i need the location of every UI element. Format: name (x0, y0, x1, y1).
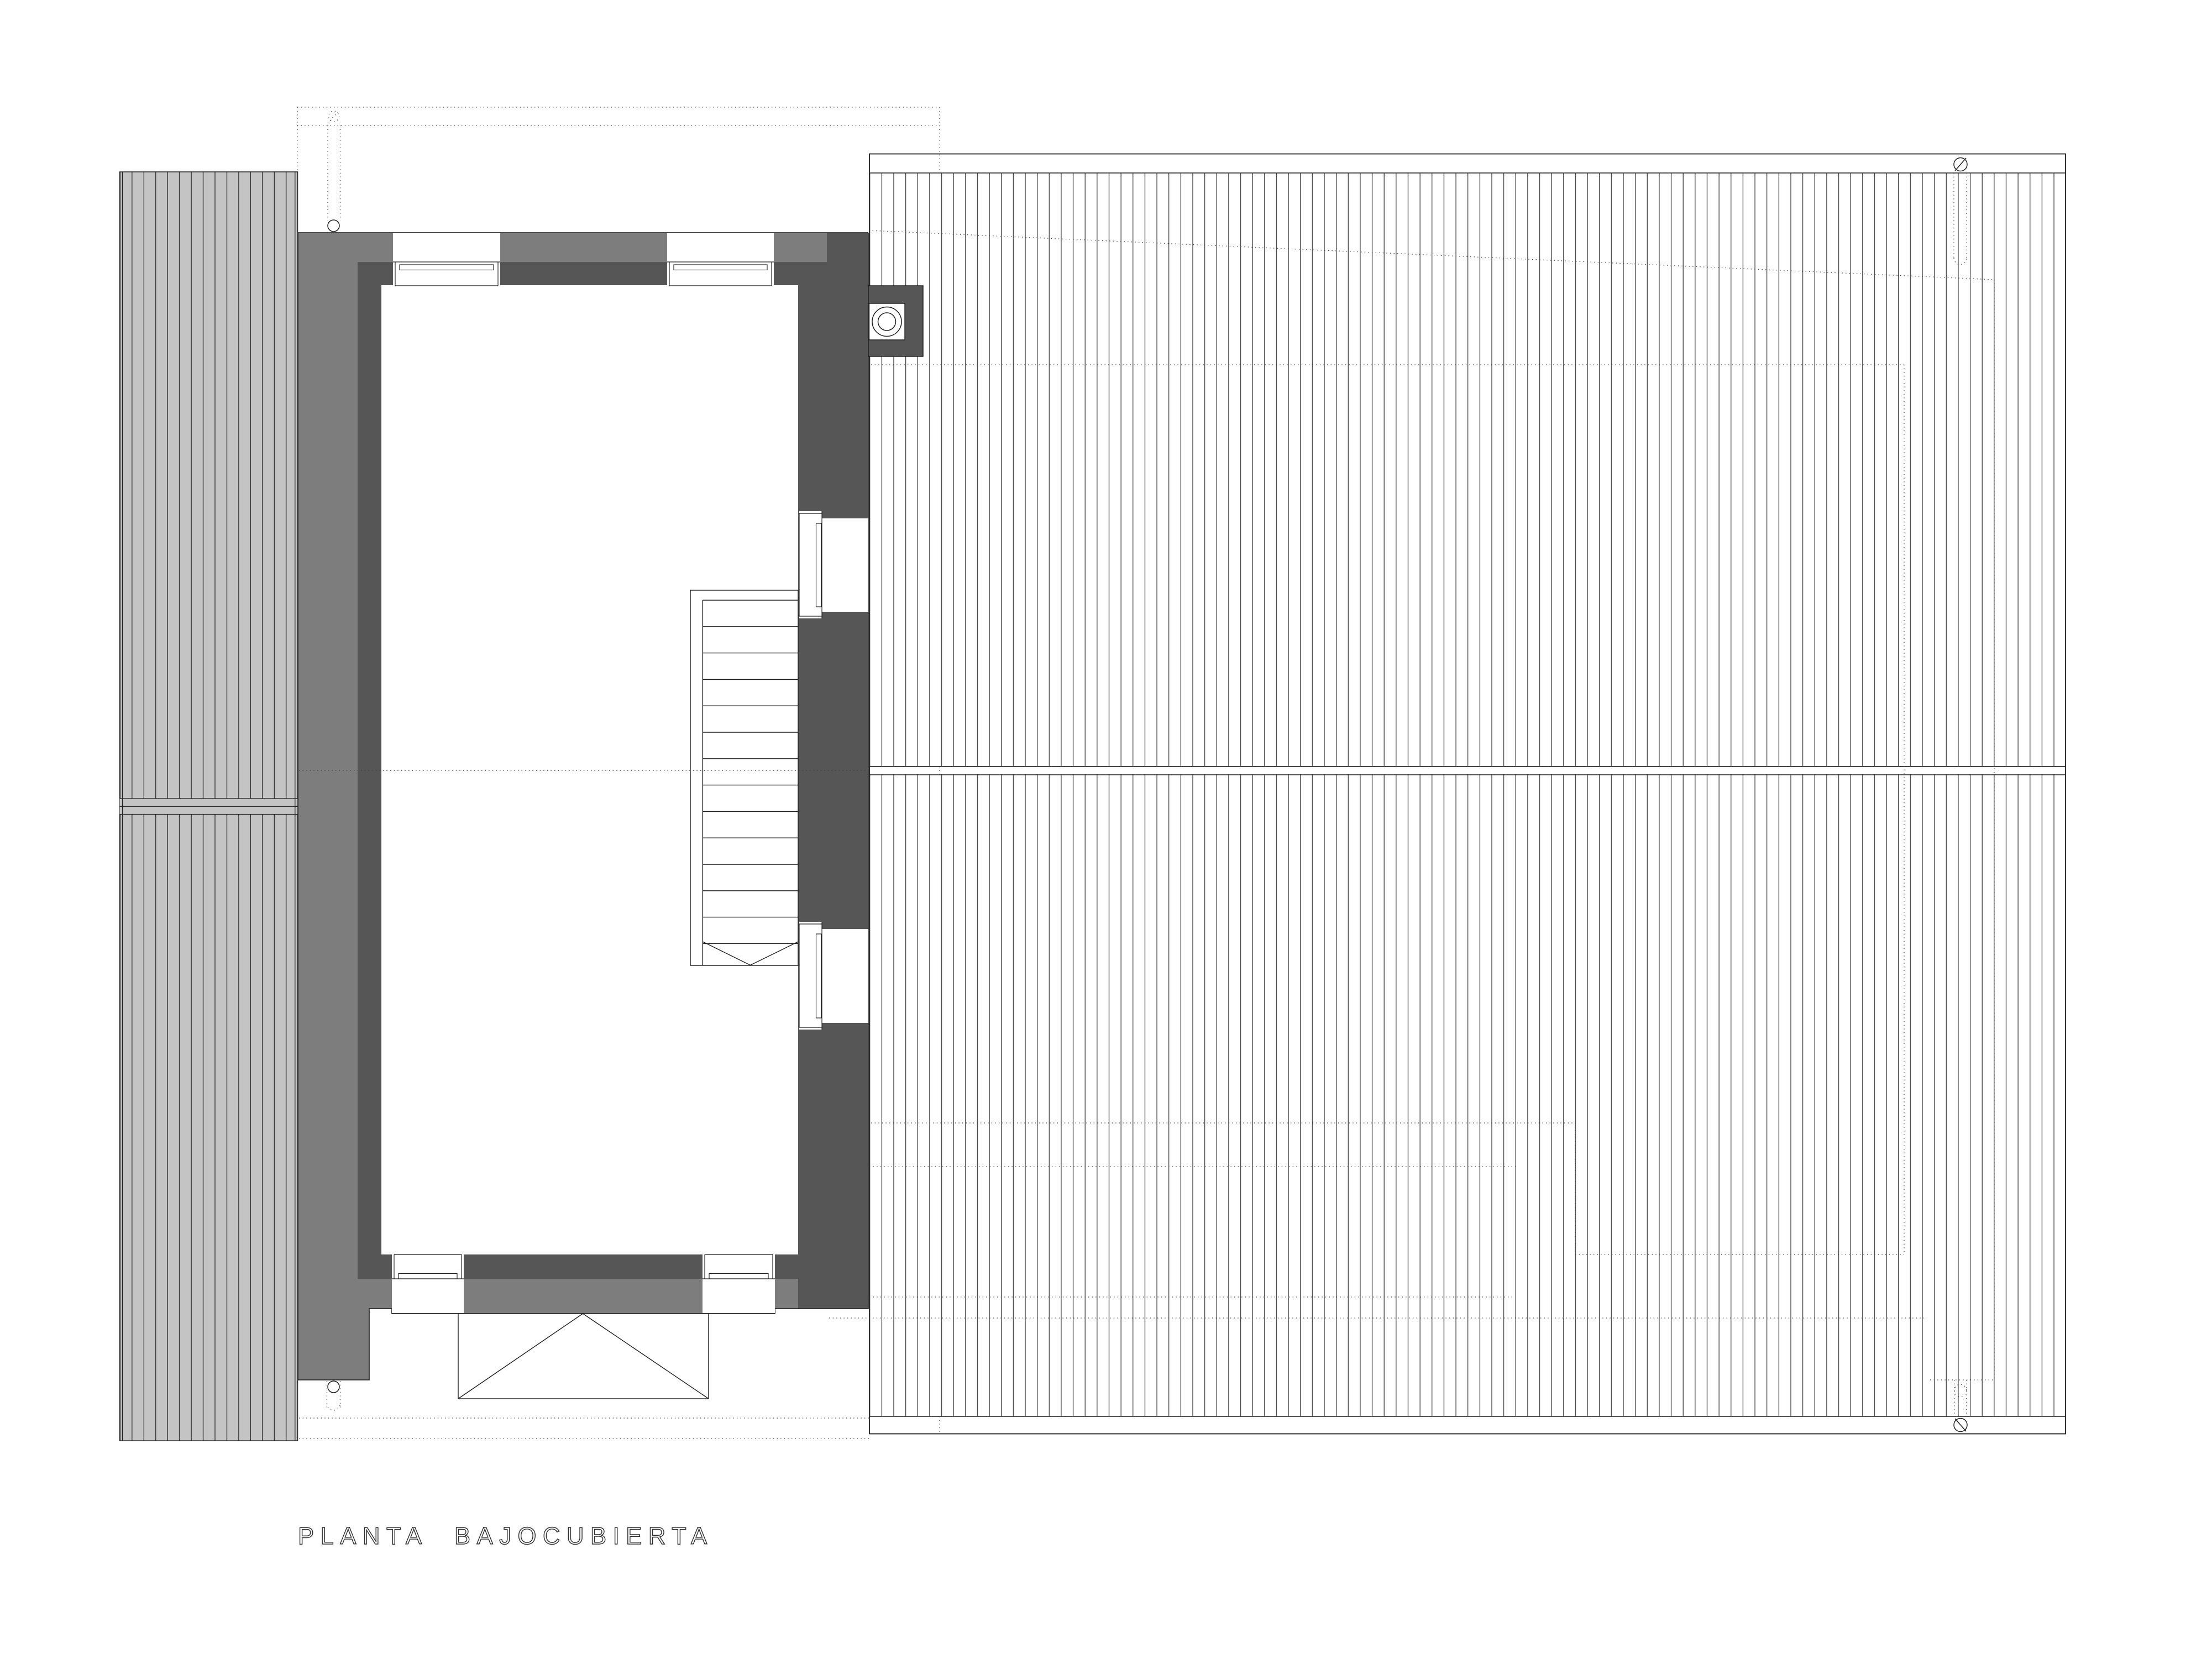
svg-text:PLANTA BAJOCUBIERTA: PLANTA BAJOCUBIERTA (298, 1523, 714, 1550)
